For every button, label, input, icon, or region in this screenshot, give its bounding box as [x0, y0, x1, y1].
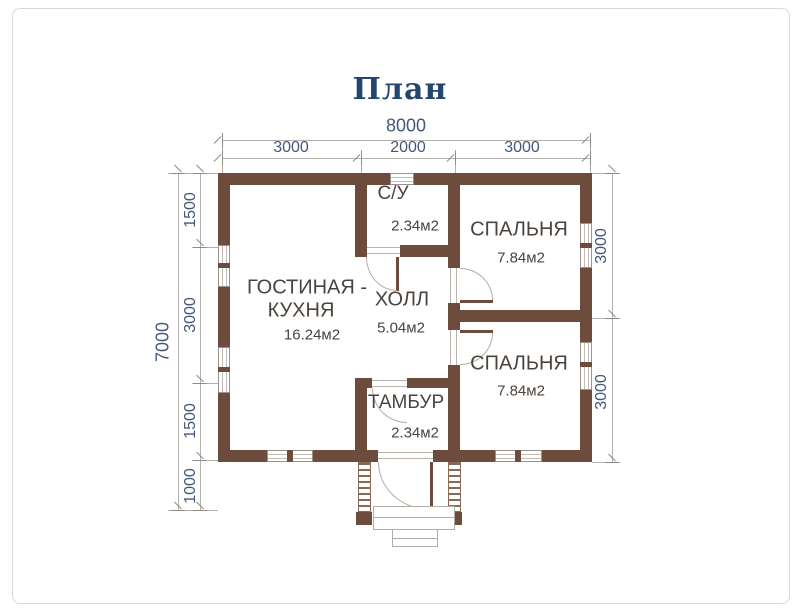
window-mullion — [580, 362, 592, 367]
room-label-bedroom2: СПАЛЬНЯ — [470, 353, 568, 376]
dim-label-top-seg-1: 3000 — [273, 139, 309, 157]
porch-post-left-foot — [356, 512, 372, 525]
wall-living-su — [355, 185, 367, 257]
room-label-su: С/У — [377, 183, 408, 205]
dimension-tick — [605, 173, 619, 174]
room-label-bedroom1: СПАЛЬНЯ — [470, 219, 568, 242]
room-area-su: 2.34м2 — [391, 218, 439, 235]
room-label-living-line1: ГОСТИНАЯ - — [247, 277, 367, 300]
dim-label-top-seg-2: 2000 — [390, 139, 426, 157]
dimension-tick — [590, 151, 591, 165]
room-label-living-line2: КУХНЯ — [268, 300, 335, 323]
wall-tambur-top-right — [407, 378, 460, 388]
porch-post-right — [448, 462, 461, 512]
dimension-tick — [455, 151, 456, 165]
room-area-hall: 5.04м2 — [377, 320, 425, 337]
door-opening-su — [367, 245, 400, 257]
dimension-line-top-segments — [222, 158, 590, 159]
dimension-tick — [605, 462, 619, 463]
window-mullion — [218, 263, 230, 268]
dim-label-left-seg-2: 3000 — [182, 297, 200, 333]
dim-label-top-seg-3: 3000 — [504, 139, 540, 157]
porch-step-line — [393, 538, 437, 539]
dimension-tick — [222, 151, 223, 165]
wall-exterior-right — [580, 173, 592, 462]
dimension-tick — [193, 510, 207, 511]
door-opening-entrance — [378, 450, 433, 462]
dimension-tick — [605, 318, 619, 319]
wall-hall-bedrooms-middle — [448, 303, 460, 330]
room-label-hall: ХОЛЛ — [375, 289, 429, 312]
room-area-bedroom1: 7.84м2 — [497, 250, 545, 267]
room-area-living: 16.24м2 — [284, 327, 340, 344]
door-bedroom1-leaf — [460, 300, 493, 303]
door-entrance-leaf — [430, 462, 433, 510]
dimension-tick — [171, 173, 185, 174]
dimension-tick — [193, 173, 207, 174]
dimension-tick — [590, 133, 591, 147]
dimension-line-left-total — [178, 173, 179, 510]
dim-label-top-total: 8000 — [386, 116, 426, 137]
dimension-tick — [171, 510, 185, 511]
porch-step-line — [374, 517, 454, 518]
wall-su-bottom — [400, 245, 460, 257]
porch-post-left — [358, 462, 371, 512]
wall-bedroom-divider — [460, 310, 580, 322]
window-mullion — [287, 450, 293, 462]
dimension-tick — [193, 247, 207, 248]
porch-step-upper — [373, 506, 455, 530]
wall-living-tambur — [355, 378, 367, 450]
plan-title: План — [0, 72, 800, 107]
door-opening-tambur — [372, 378, 407, 388]
door-opening-bedroom2 — [448, 330, 460, 365]
room-label-tambur: ТАМБУР — [368, 392, 444, 414]
dimension-tick — [193, 460, 207, 461]
window-mullion — [580, 243, 592, 248]
window-mullion — [515, 450, 521, 462]
floor-plan-page: План 8000 3000 2000 3000 7000 1500 3000 … — [0, 0, 800, 612]
dim-label-left-seg-4: 1000 — [182, 468, 200, 504]
dim-label-right-seg-2: 3000 — [593, 374, 611, 410]
dim-label-left-seg-1: 1500 — [182, 192, 200, 228]
window-mullion — [218, 367, 230, 372]
wall-exterior-left — [218, 173, 230, 462]
dim-label-left-seg-3: 1500 — [182, 403, 200, 439]
door-opening-bedroom1 — [448, 268, 460, 303]
room-area-bedroom2: 7.84м2 — [497, 383, 545, 400]
dim-label-left-total: 7000 — [153, 322, 174, 362]
room-area-tambur: 2.34м2 — [391, 425, 439, 442]
dimension-tick — [222, 133, 223, 147]
dimension-tick — [361, 151, 362, 165]
dimension-tick — [193, 383, 207, 384]
dim-label-right-seg-1: 3000 — [593, 228, 611, 264]
